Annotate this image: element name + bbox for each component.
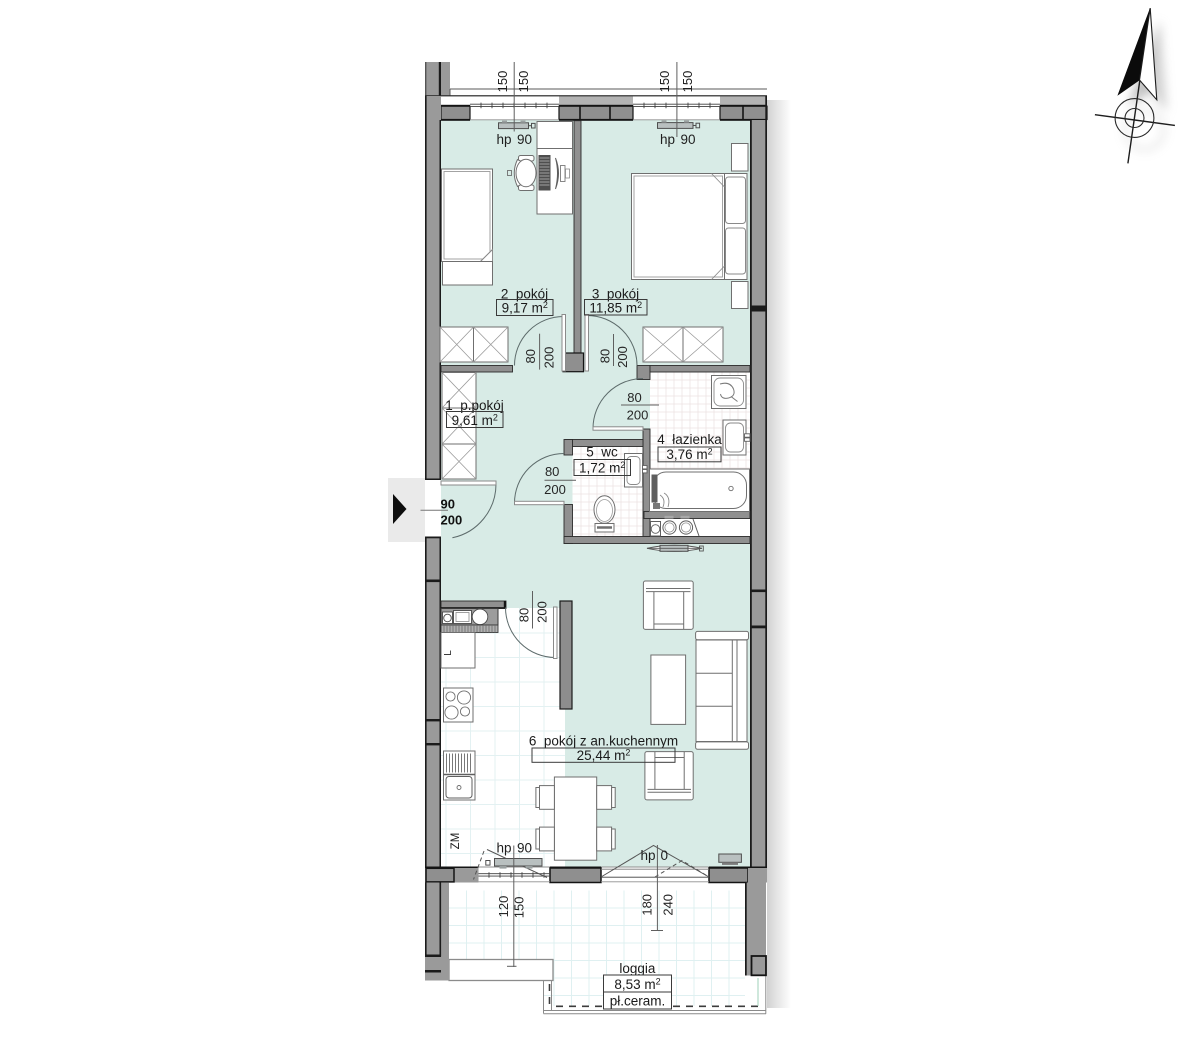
svg-text:loggia: loggia [619,961,656,976]
svg-text:90: 90 [517,132,532,147]
svg-text:11,85 m2: 11,85 m2 [589,300,642,316]
svg-text:150: 150 [680,71,695,93]
svg-text:80: 80 [545,464,559,479]
svg-text:hp: hp [660,132,675,147]
svg-text:hp: hp [496,132,511,147]
svg-text:9,17 m2: 9,17 m2 [502,300,548,316]
svg-text:5 wc: 5 wc [586,445,618,460]
svg-text:80: 80 [627,390,641,405]
svg-text:90: 90 [681,132,696,147]
svg-text:80: 80 [523,349,538,363]
svg-text:hp: hp [496,841,511,856]
svg-text:150: 150 [657,71,672,93]
svg-text:200: 200 [441,513,463,528]
svg-text:L: L [443,650,454,656]
svg-text:200: 200 [534,601,549,623]
svg-text:200: 200 [541,347,556,369]
svg-text:4 łazienka: 4 łazienka [657,432,722,447]
svg-text:120: 120 [496,896,511,918]
svg-text:240: 240 [661,894,676,916]
svg-text:90: 90 [517,841,532,856]
svg-text:25,44 m2: 25,44 m2 [577,748,631,764]
svg-text:3,76 m2: 3,76 m2 [666,447,712,463]
svg-text:150: 150 [512,897,527,919]
svg-text:hp: hp [640,848,655,863]
svg-text:90: 90 [441,496,455,511]
svg-text:1,72 m2: 1,72 m2 [579,460,625,476]
svg-text:150: 150 [495,71,510,93]
svg-text:8,53 m2: 8,53 m2 [614,976,660,992]
svg-text:200: 200 [615,346,630,368]
svg-text:180: 180 [640,894,655,916]
svg-text:200: 200 [544,482,566,497]
svg-text:ZM: ZM [450,833,462,850]
svg-text:9,61 m2: 9,61 m2 [452,412,498,428]
svg-text:80: 80 [516,608,531,622]
svg-text:200: 200 [627,407,649,422]
svg-text:80: 80 [598,349,613,363]
svg-text:pł.ceram.: pł.ceram. [610,994,666,1009]
svg-text:0: 0 [661,848,669,863]
svg-text:150: 150 [516,71,531,93]
svg-text:1 p.pokój: 1 p.pokój [445,398,504,413]
svg-text:6 pokój z an.kuchennym: 6 pokój z an.kuchennym [529,733,678,748]
